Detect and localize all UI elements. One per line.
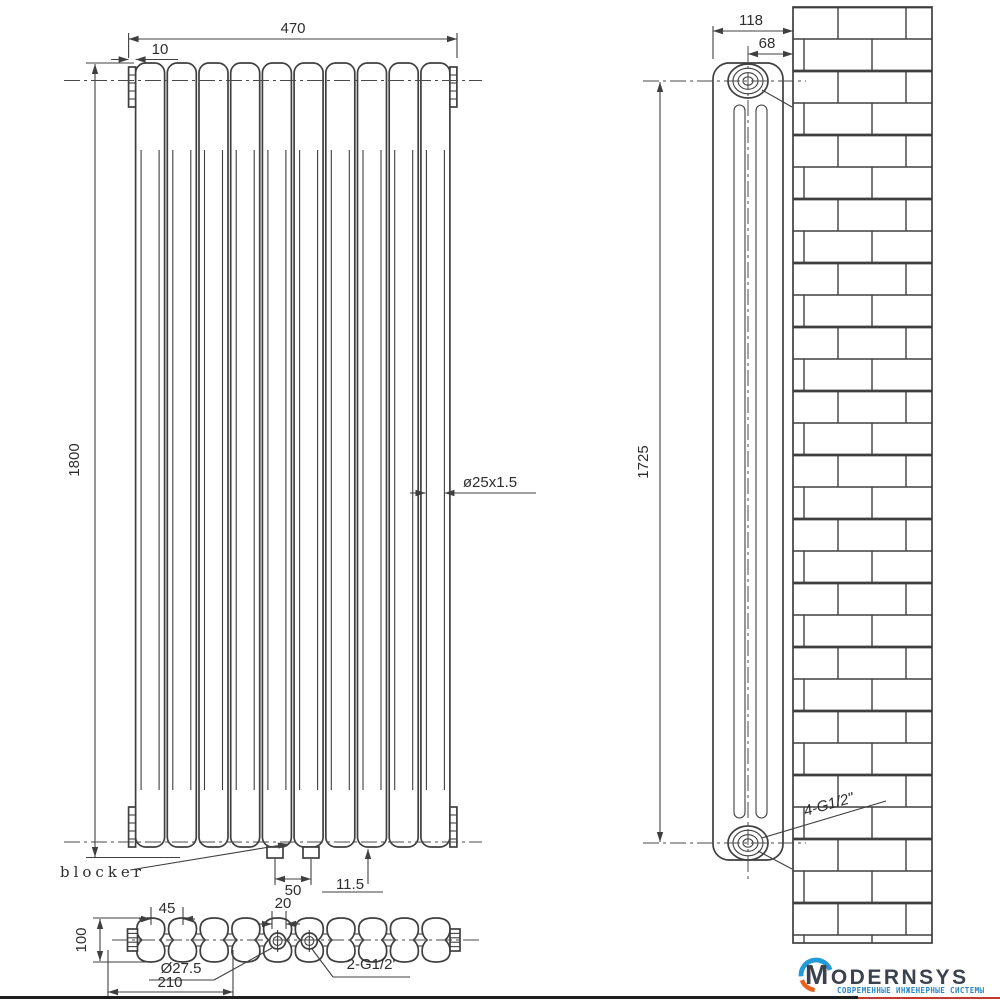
dim-port-distance: 210 <box>157 974 182 991</box>
radiator-section <box>326 63 355 847</box>
bottom-rule-red <box>858 997 1000 999</box>
radiator-section <box>136 63 165 847</box>
end-plug <box>450 807 457 847</box>
technical-drawing: 470 10 1800 ø25x1.5 blocker 50 11.5 118 … <box>0 0 1000 1000</box>
dim-top-depth: 100 <box>73 927 90 952</box>
end-plug <box>129 807 136 847</box>
modernsys-logo: MODERNSYS СОВРЕМЕННЫЕ ИНЖЕНЕРНЫЕ СИСТЕМЫ <box>791 952 1000 1000</box>
radiator-section <box>358 63 387 847</box>
dim-tube-size: ø25x1.5 <box>463 474 517 491</box>
radiator-section <box>421 63 450 847</box>
front-view-feet <box>267 847 319 858</box>
bottom-rule <box>0 996 858 999</box>
dim-connection-height: 1725 <box>635 445 652 478</box>
dim-front-height: 1800 <box>66 443 83 476</box>
end-plug <box>129 67 136 107</box>
label-blocker: blocker <box>60 863 145 881</box>
label-bottom-ports: 2-G1/2' <box>347 956 396 973</box>
radiator-section <box>231 63 260 847</box>
radiator-section <box>389 63 418 847</box>
wall-bracket-foot <box>267 847 283 858</box>
dim-section-pitch: 45 <box>159 900 176 917</box>
radiator-section <box>294 63 323 847</box>
dim-port-gap: 20 <box>275 895 292 912</box>
dim-side-depth: 118 <box>739 12 763 29</box>
wall-bracket-foot <box>303 847 319 858</box>
end-plug <box>450 67 457 107</box>
radiator-section <box>199 63 228 847</box>
dim-front-total-width: 470 <box>280 20 305 37</box>
logo-tagline-text: СОВРЕМЕННЫЕ ИНЖЕНЕРНЫЕ СИСТЕМЫ <box>837 986 984 995</box>
dim-center-to-wall: 68 <box>759 35 776 52</box>
radiator-section <box>262 63 291 847</box>
radiator-section <box>167 63 196 847</box>
dim-front-end-offset: 10 <box>152 41 169 58</box>
dim-foot-width: 11.5 <box>336 876 364 893</box>
front-view <box>129 63 457 847</box>
